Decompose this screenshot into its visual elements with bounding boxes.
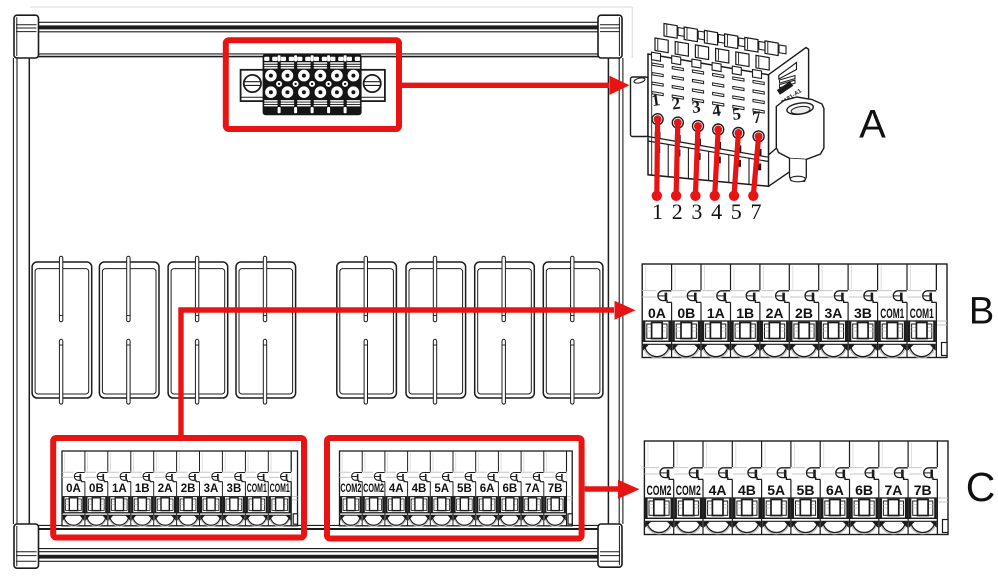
svg-text:3A: 3A: [204, 483, 219, 495]
svg-text:6A: 6A: [826, 482, 844, 498]
svg-text:4A: 4A: [389, 483, 404, 495]
svg-text:2A: 2A: [766, 305, 784, 321]
svg-text:7: 7: [751, 199, 762, 224]
svg-text:1: 1: [652, 199, 663, 224]
svg-text:4: 4: [711, 199, 722, 224]
svg-text:4B: 4B: [412, 483, 427, 495]
svg-text:COM2: COM2: [340, 483, 361, 495]
svg-text:A: A: [859, 102, 886, 146]
svg-text:0B: 0B: [89, 483, 104, 495]
svg-text:COM1: COM1: [247, 483, 267, 495]
svg-text:5A: 5A: [767, 482, 785, 498]
svg-text:1A: 1A: [112, 483, 127, 495]
svg-text:6B: 6B: [855, 482, 873, 498]
svg-text:6B: 6B: [502, 483, 517, 495]
svg-text:4A: 4A: [709, 482, 727, 498]
svg-text:3B: 3B: [854, 305, 872, 321]
svg-text:7A: 7A: [525, 483, 540, 495]
svg-text:3B: 3B: [227, 483, 242, 495]
svg-text:1A: 1A: [707, 305, 725, 321]
svg-text:6A: 6A: [480, 483, 495, 495]
svg-text:C: C: [966, 464, 996, 510]
svg-text:0B: 0B: [677, 305, 695, 321]
svg-text:7B: 7B: [914, 482, 932, 498]
svg-text:COM2: COM2: [647, 482, 672, 498]
svg-text:COM1: COM1: [270, 483, 290, 495]
svg-text:COM2: COM2: [363, 483, 384, 495]
svg-text:2A: 2A: [158, 483, 173, 495]
svg-text:3: 3: [691, 199, 702, 224]
svg-text:0A: 0A: [648, 305, 666, 321]
svg-text:2: 2: [672, 199, 683, 224]
svg-text:2B: 2B: [181, 483, 196, 495]
svg-text:7A: 7A: [884, 482, 902, 498]
svg-text:5B: 5B: [797, 482, 815, 498]
svg-text:5: 5: [731, 199, 742, 224]
svg-text:7B: 7B: [548, 483, 563, 495]
svg-text:2B: 2B: [795, 305, 813, 321]
svg-text:0A: 0A: [66, 483, 81, 495]
svg-text:4B: 4B: [738, 482, 756, 498]
svg-text:1B: 1B: [135, 483, 150, 495]
svg-text:5B: 5B: [457, 483, 472, 495]
svg-text:B: B: [969, 291, 994, 333]
svg-text:COM1: COM1: [880, 305, 904, 321]
svg-text:COM1: COM1: [910, 305, 934, 321]
svg-text:3A: 3A: [824, 305, 842, 321]
svg-text:COM2: COM2: [676, 482, 701, 498]
svg-text:1B: 1B: [736, 305, 754, 321]
svg-text:5A: 5A: [434, 483, 449, 495]
